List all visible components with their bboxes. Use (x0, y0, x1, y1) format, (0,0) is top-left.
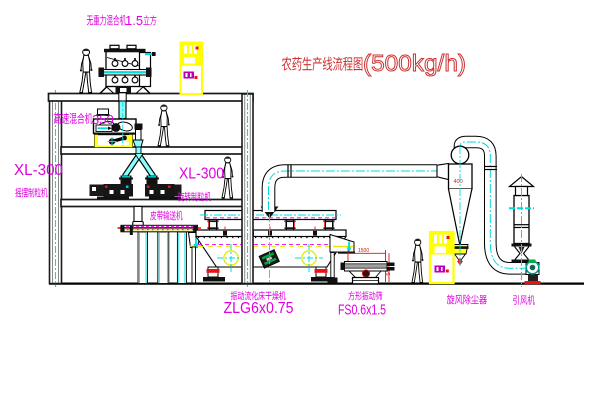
svg-text:400: 400 (454, 179, 463, 185)
svg-text:XL-300: XL-300 (14, 162, 63, 179)
svg-text:ZLG6x0.75: ZLG6x0.75 (224, 300, 294, 317)
svg-text:(500kg/h): (500kg/h) (363, 50, 466, 76)
svg-text:1500: 1500 (358, 248, 369, 254)
svg-text:XL-300: XL-300 (179, 166, 224, 183)
svg-text:1.5: 1.5 (125, 13, 143, 28)
svg-text:FS0.6x1.5: FS0.6x1.5 (338, 302, 386, 319)
svg-text:350: 350 (92, 112, 114, 127)
